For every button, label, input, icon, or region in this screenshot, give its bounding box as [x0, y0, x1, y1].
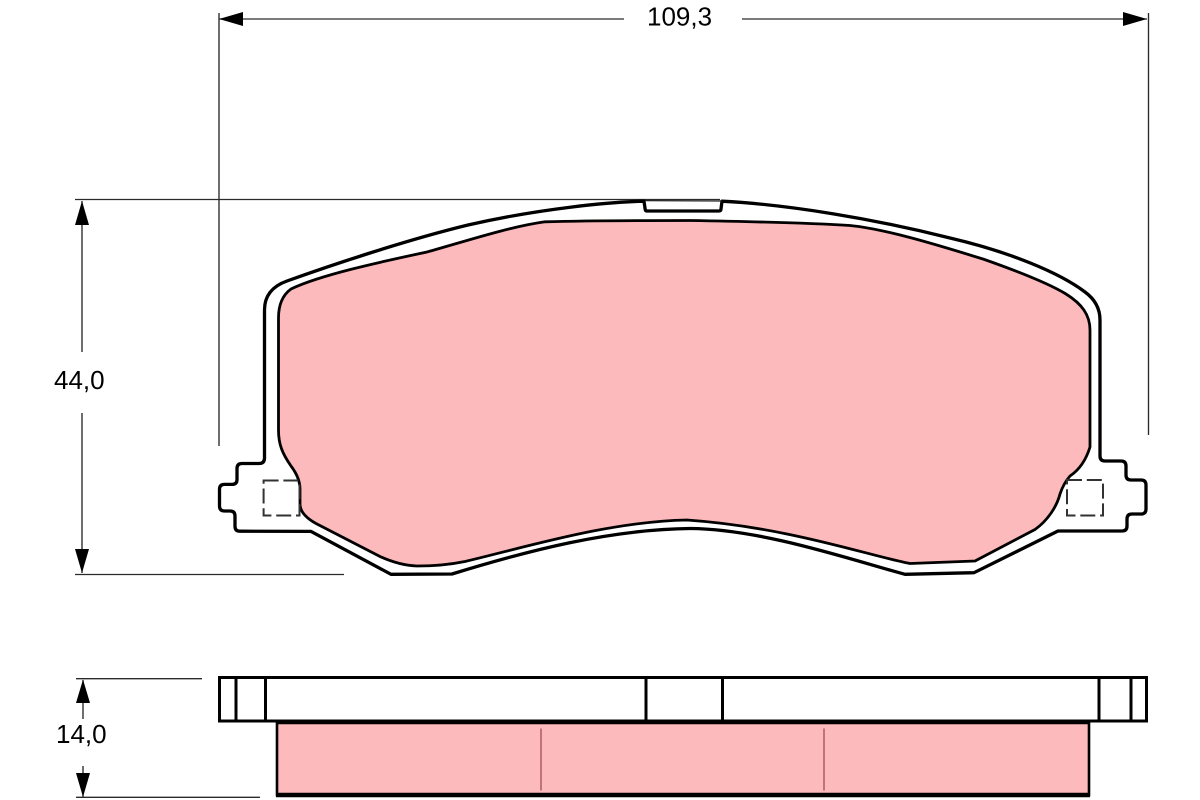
- svg-text:14,0: 14,0: [56, 719, 107, 749]
- svg-text:44,0: 44,0: [54, 365, 105, 395]
- svg-text:109,3: 109,3: [647, 2, 712, 32]
